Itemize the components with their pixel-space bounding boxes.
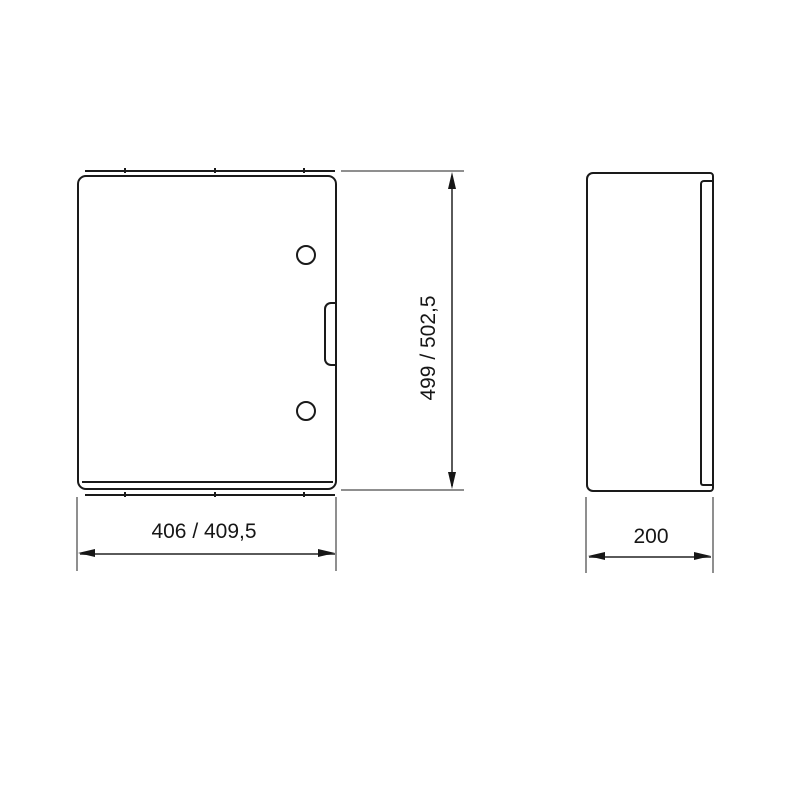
depth-arrow-left-icon [588,552,605,560]
width-extension-left [76,497,78,571]
depth-dimension-label: 200 [591,524,711,550]
door-panel [77,175,337,490]
drawing-canvas: 499 / 502,5 406 / 409,5 200 [0,0,800,800]
height-extension-top [341,170,464,172]
seam-tick [303,168,305,173]
width-arrow-left-icon [78,549,95,557]
side-door-strip [700,180,712,486]
seam-tick [214,492,216,497]
depth-extension-left [585,497,587,573]
height-arrow-up-icon [448,172,456,189]
lock-hole-top [296,245,316,265]
depth-arrow-right-icon [694,552,711,560]
height-dimension-line [451,176,453,486]
width-dimension-line [80,553,335,555]
height-arrow-down-icon [448,472,456,489]
depth-dimension-line [589,556,711,558]
height-extension-bottom [341,489,464,491]
height-dimension-label: 499 / 502,5 [416,263,442,433]
seam-tick [124,168,126,173]
width-dimension-label: 406 / 409,5 [119,519,289,545]
lock-hole-bottom [296,401,316,421]
door-handle [324,302,336,366]
width-arrow-right-icon [318,549,335,557]
depth-extension-right [712,497,714,573]
door-bottom-seam [82,481,333,483]
body-bottom-edge [85,494,335,496]
seam-tick [214,168,216,173]
seam-tick [124,492,126,497]
seam-tick [303,492,305,497]
width-extension-right [335,497,337,571]
body-top-edge [85,170,335,172]
side-body-outline [586,172,714,492]
